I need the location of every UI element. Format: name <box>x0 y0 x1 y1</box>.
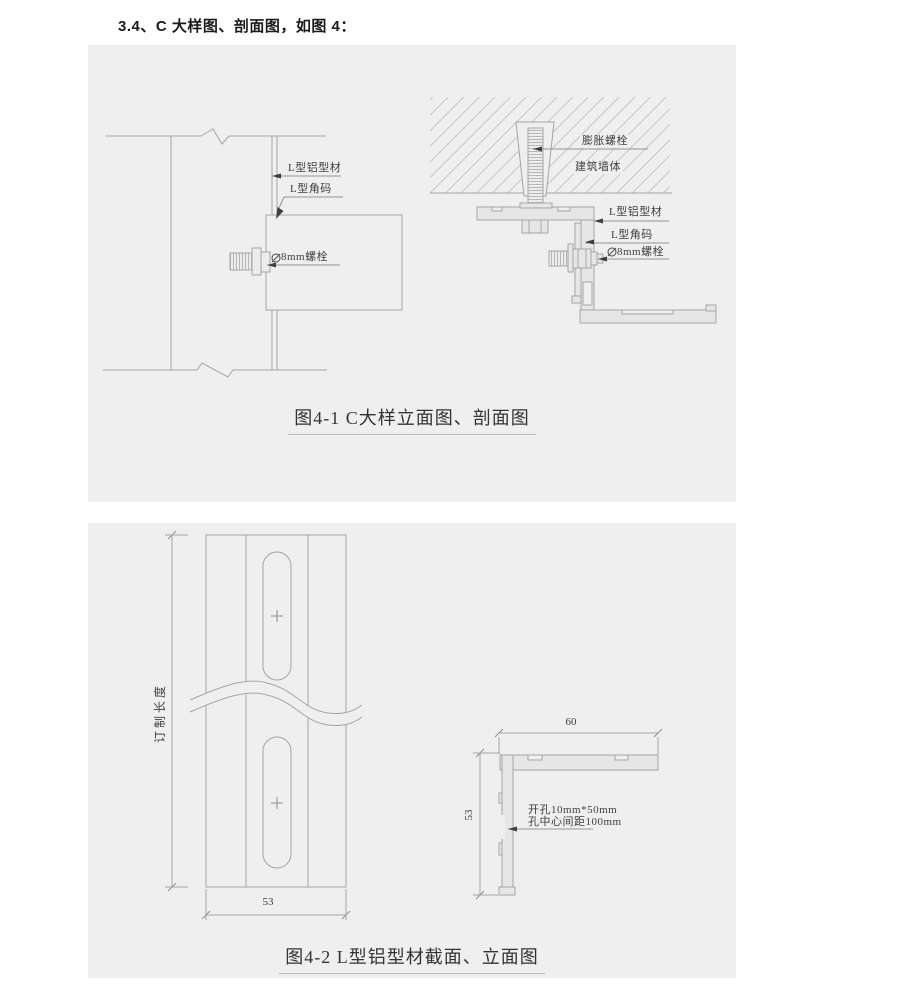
dim-section-width-60: 60 <box>543 716 599 728</box>
label-elev-angle-code: L型角码 <box>290 183 332 196</box>
figure2-linework <box>88 523 736 978</box>
dim-section-height-53: 53 <box>463 785 479 845</box>
label-sec-expansion-bolt: 膨胀螺栓 <box>580 135 630 148</box>
label-sec-angle-code: L型角码 <box>611 229 653 242</box>
figure1-panel: L型铝型材 L型角码 8mm螺栓 膨胀螺栓 建筑墙体 L型铝型材 L型角码 8m… <box>88 45 736 502</box>
dim-custom-length: 订制长度 <box>151 683 167 743</box>
figure1-caption-row: 图4-1 C大样立面图、剖面图 <box>88 404 736 435</box>
label-sec-bolt: 8mm螺栓 <box>617 246 664 259</box>
profile-front-view <box>165 531 362 920</box>
dim-front-width-53: 53 <box>238 896 298 908</box>
figure2-caption-row: 图4-2 L型铝型材截面、立面图 <box>88 943 736 974</box>
figure2-caption: 图4-2 L型铝型材截面、立面图 <box>279 943 545 974</box>
section-drawing <box>430 97 716 323</box>
figure1-caption: 图4-1 C大样立面图、剖面图 <box>288 404 536 435</box>
section-heading: 3.4、C 大样图、剖面图，如图 4： <box>118 15 356 36</box>
elevation-drawing <box>103 129 402 377</box>
figure2-panel: 订制长度 53 60 53 开孔10mm*50mm 孔中心间距100mm 图4-… <box>88 523 736 978</box>
label-sec-l-profile: L型铝型材 <box>609 206 662 219</box>
label-elev-bolt: 8mm螺栓 <box>281 251 328 264</box>
document-page: 3.4、C 大样图、剖面图，如图 4： <box>0 0 910 1000</box>
label-elev-l-profile: L型铝型材 <box>288 162 341 175</box>
label-sec-wall: 建筑墙体 <box>573 161 623 174</box>
note-hole-spacing: 孔中心间距100mm <box>528 816 622 829</box>
